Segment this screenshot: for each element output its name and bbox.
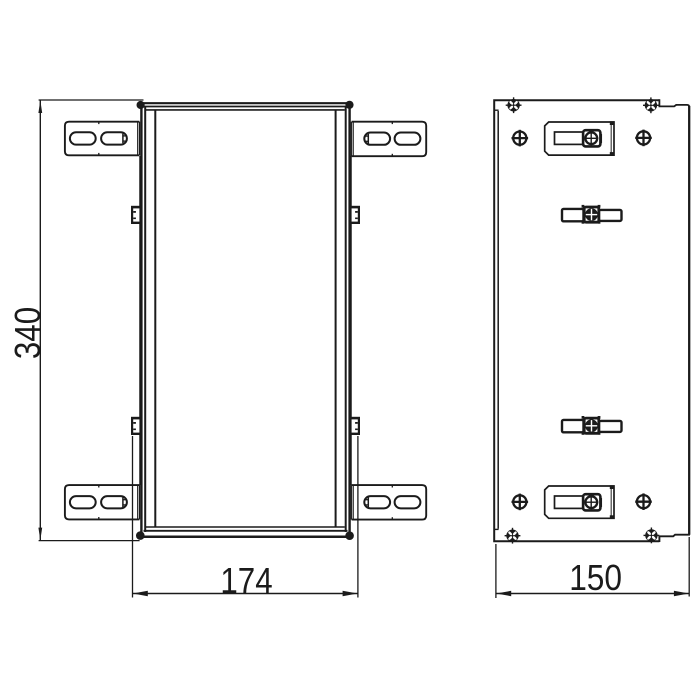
svg-text:174: 174 bbox=[220, 561, 272, 602]
svg-text:150: 150 bbox=[569, 558, 622, 598]
svg-text:340: 340 bbox=[8, 307, 49, 359]
